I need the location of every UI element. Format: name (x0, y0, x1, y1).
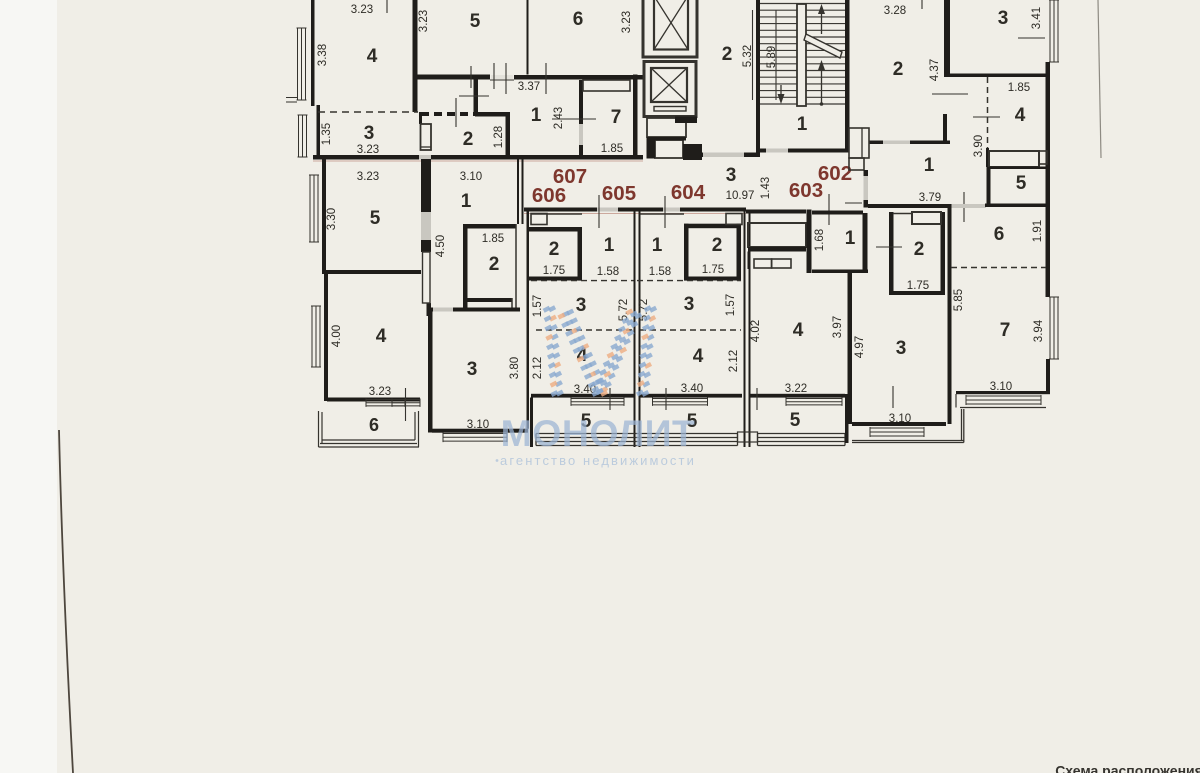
svg-text:3.22: 3.22 (785, 383, 807, 395)
svg-text:4.97: 4.97 (854, 336, 866, 358)
svg-text:2: 2 (722, 44, 733, 65)
svg-text:4.37: 4.37 (929, 59, 941, 81)
svg-text:3.37: 3.37 (518, 81, 540, 93)
svg-text:5.85: 5.85 (953, 289, 965, 311)
svg-text:3: 3 (896, 338, 907, 359)
svg-text:5: 5 (790, 410, 801, 431)
svg-text:1.75: 1.75 (907, 280, 929, 292)
svg-text:3.23: 3.23 (418, 10, 430, 32)
svg-text:5: 5 (370, 208, 381, 229)
svg-text:2.43: 2.43 (553, 107, 565, 129)
svg-text:4: 4 (693, 346, 704, 367)
svg-text:агентство недвижимости: агентство недвижимости (500, 453, 696, 468)
svg-text:5.72: 5.72 (618, 299, 630, 321)
svg-text:МОНОЛИТ: МОНОЛИТ (501, 412, 696, 454)
svg-text:1: 1 (845, 228, 856, 249)
svg-text:2: 2 (893, 59, 904, 80)
svg-text:605: 605 (602, 182, 636, 205)
svg-text:1.57: 1.57 (725, 294, 737, 316)
svg-text:1: 1 (924, 155, 935, 176)
svg-text:7: 7 (611, 107, 622, 128)
svg-text:3.28: 3.28 (884, 5, 906, 17)
svg-text:4: 4 (376, 326, 387, 347)
svg-text:3.38: 3.38 (317, 44, 329, 66)
svg-text:1.85: 1.85 (601, 143, 623, 155)
svg-text:4: 4 (1015, 105, 1026, 126)
svg-text:7: 7 (1000, 320, 1011, 341)
svg-text:2.12: 2.12 (728, 350, 740, 372)
svg-text:3.10: 3.10 (460, 171, 482, 183)
svg-text:1: 1 (531, 105, 542, 126)
svg-text:3.40: 3.40 (681, 383, 703, 395)
svg-text:1: 1 (461, 191, 472, 212)
svg-text:6: 6 (573, 9, 584, 30)
svg-text:602: 602 (818, 162, 852, 185)
svg-text:1.91: 1.91 (1032, 220, 1044, 242)
svg-text:1: 1 (797, 114, 808, 135)
svg-text:3: 3 (726, 165, 737, 186)
svg-text:3.97: 3.97 (832, 316, 844, 338)
svg-text:2: 2 (712, 235, 723, 256)
svg-text:3: 3 (467, 359, 478, 380)
svg-text:1.43: 1.43 (760, 177, 772, 199)
svg-text:1.75: 1.75 (543, 265, 565, 277)
svg-text:4.02: 4.02 (750, 320, 762, 342)
svg-text:1.35: 1.35 (321, 123, 333, 145)
svg-text:3: 3 (576, 295, 587, 316)
svg-text:6: 6 (369, 415, 379, 435)
svg-text:6: 6 (994, 224, 1005, 245)
svg-text:10.97: 10.97 (726, 190, 755, 202)
svg-text:4.50: 4.50 (435, 235, 447, 257)
svg-text:604: 604 (671, 181, 706, 204)
svg-text:3.23: 3.23 (351, 4, 373, 16)
svg-text:1: 1 (604, 235, 615, 256)
svg-text:3: 3 (684, 294, 695, 315)
svg-text:4: 4 (367, 46, 378, 67)
svg-text:1.58: 1.58 (597, 266, 619, 278)
svg-text:1.85: 1.85 (1008, 82, 1030, 94)
svg-text:2: 2 (914, 239, 925, 260)
svg-text:3.94: 3.94 (1033, 319, 1045, 342)
svg-text:2: 2 (549, 239, 560, 260)
svg-text:2.12: 2.12 (532, 357, 544, 379)
svg-text:1.58: 1.58 (649, 266, 671, 278)
svg-text:1.28: 1.28 (493, 126, 505, 148)
svg-text:2: 2 (489, 254, 500, 275)
svg-text:Схема расположения: Схема расположения (1055, 763, 1200, 773)
svg-text:5: 5 (470, 11, 481, 32)
svg-text:3: 3 (998, 8, 1009, 29)
svg-text:1.85: 1.85 (482, 233, 504, 245)
svg-text:3.90: 3.90 (973, 135, 985, 157)
svg-text:5: 5 (1016, 173, 1027, 194)
svg-text:1.57: 1.57 (532, 295, 544, 317)
svg-text:3.79: 3.79 (919, 192, 941, 204)
svg-text:4: 4 (793, 320, 804, 341)
svg-text:3.23: 3.23 (357, 144, 379, 156)
svg-text:3: 3 (364, 123, 375, 144)
svg-text:3.23: 3.23 (621, 11, 633, 33)
svg-text:1: 1 (652, 235, 663, 256)
svg-text:3.23: 3.23 (369, 386, 391, 398)
svg-text:3.80: 3.80 (509, 357, 521, 379)
svg-text:5.32: 5.32 (742, 45, 754, 67)
svg-text:3.23: 3.23 (357, 171, 379, 183)
svg-text:606: 606 (532, 184, 566, 207)
svg-text:4.00: 4.00 (331, 325, 343, 347)
svg-text:2: 2 (463, 129, 474, 150)
svg-text:3.30: 3.30 (326, 208, 338, 230)
svg-text:1.75: 1.75 (702, 264, 724, 276)
svg-text:1.68: 1.68 (814, 229, 826, 251)
svg-text:3.41: 3.41 (1031, 7, 1043, 29)
